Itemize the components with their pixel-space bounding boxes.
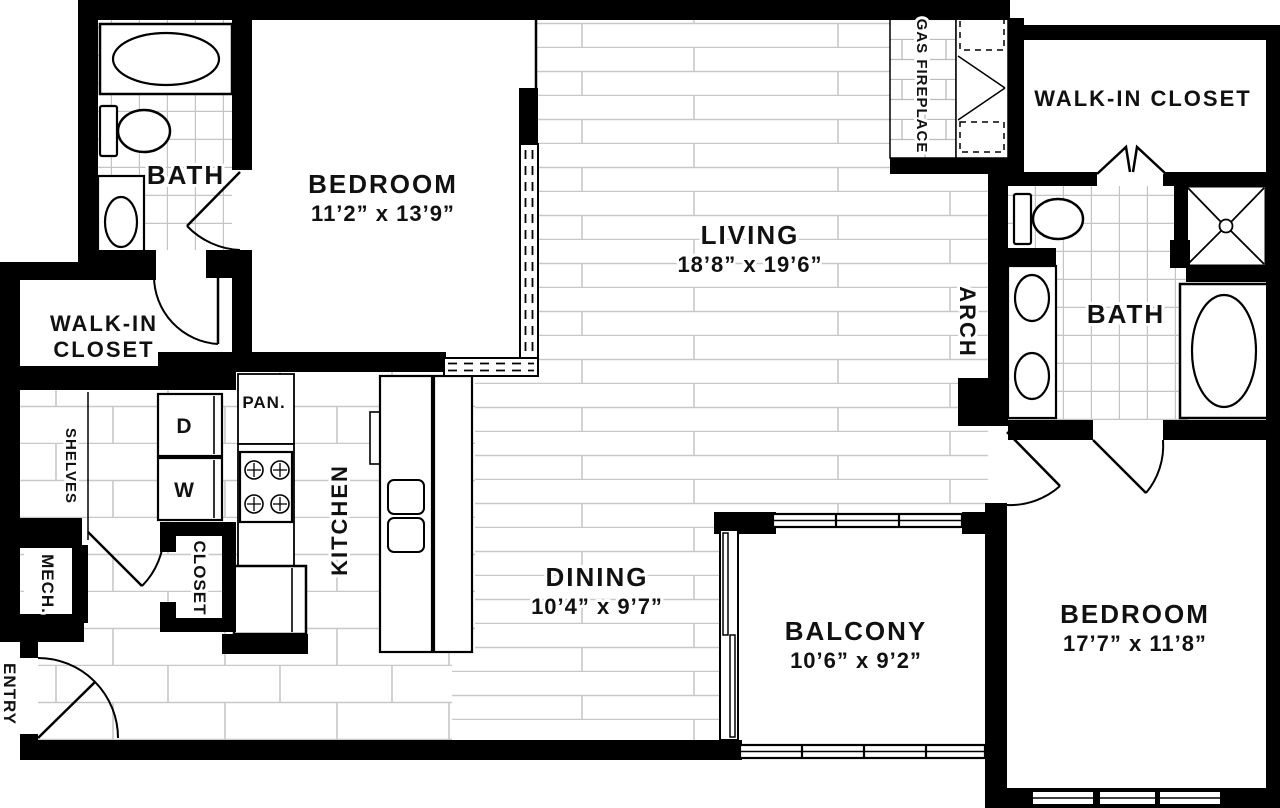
walk-in-closet-right-label: WALK-IN CLOSET <box>1034 86 1251 111</box>
bathtub-basin <box>113 33 219 85</box>
balcony-railing-bottom <box>740 745 985 758</box>
toilet-tank <box>1014 194 1031 244</box>
pantry-label: PAN. <box>242 393 285 412</box>
bath-2-label: BATH <box>1087 299 1165 329</box>
living-dims: 18’8” x 19’6” <box>677 252 822 277</box>
toilet-bowl <box>118 110 170 152</box>
bedroom-1-label: BEDROOM <box>308 169 458 199</box>
floor-plan-drawing: BEDROOM 11’2” x 13’9” LIVING 18’8” x 19’… <box>0 0 1280 808</box>
refrigerator <box>234 566 306 634</box>
balcony-sliding-door <box>720 530 738 740</box>
sink <box>1015 353 1049 399</box>
balcony-railing-top <box>773 514 962 527</box>
bathtub-basin <box>1192 295 1256 407</box>
living-label: LIVING <box>701 220 800 250</box>
walk-in-closet-left-label-2: CLOSET <box>53 337 154 362</box>
shower-drain <box>1220 220 1233 233</box>
walk-in-closet-left-label-1: WALK-IN <box>50 311 158 336</box>
floor-plan: BEDROOM 11’2” x 13’9” LIVING 18’8” x 19’… <box>0 0 1280 808</box>
island-sink-basin <box>388 518 424 552</box>
toilet-bowl <box>1033 199 1083 239</box>
dining-dims: 10’4” x 9’7” <box>531 594 663 619</box>
dishwasher <box>370 412 380 464</box>
toilet-tank <box>100 106 117 156</box>
washer-label: W <box>174 479 194 502</box>
sink <box>105 197 137 247</box>
arch-label: ARCH <box>955 286 980 358</box>
kitchen-label: KITCHEN <box>327 464 352 576</box>
bedroom-1-dims: 11’2” x 13’9” <box>311 201 455 226</box>
dryer-label: D <box>176 415 191 438</box>
closet-label: CLOSET <box>190 541 209 616</box>
balcony-label: BALCONY <box>785 616 928 646</box>
shelves-label: SHELVES <box>62 428 79 504</box>
balcony-dims: 10’6” x 9’2” <box>790 648 922 673</box>
bedroom-2-label: BEDROOM <box>1060 599 1210 629</box>
bedroom-2-windows <box>1032 791 1221 805</box>
sink <box>1015 275 1049 321</box>
entry-label: ENTRY <box>0 663 19 725</box>
mech-label: MECH. <box>38 554 57 614</box>
entry-door-opening <box>20 658 38 734</box>
bedroom-2-dims: 17’7” x 11’8” <box>1063 631 1207 656</box>
island-sink-basin <box>388 480 424 514</box>
gas-fireplace-label: GAS FIREPLACE <box>913 19 930 154</box>
dining-label: DINING <box>546 562 649 592</box>
kitchen-island-bar <box>434 376 472 652</box>
bath-1-label: BATH <box>147 160 225 190</box>
